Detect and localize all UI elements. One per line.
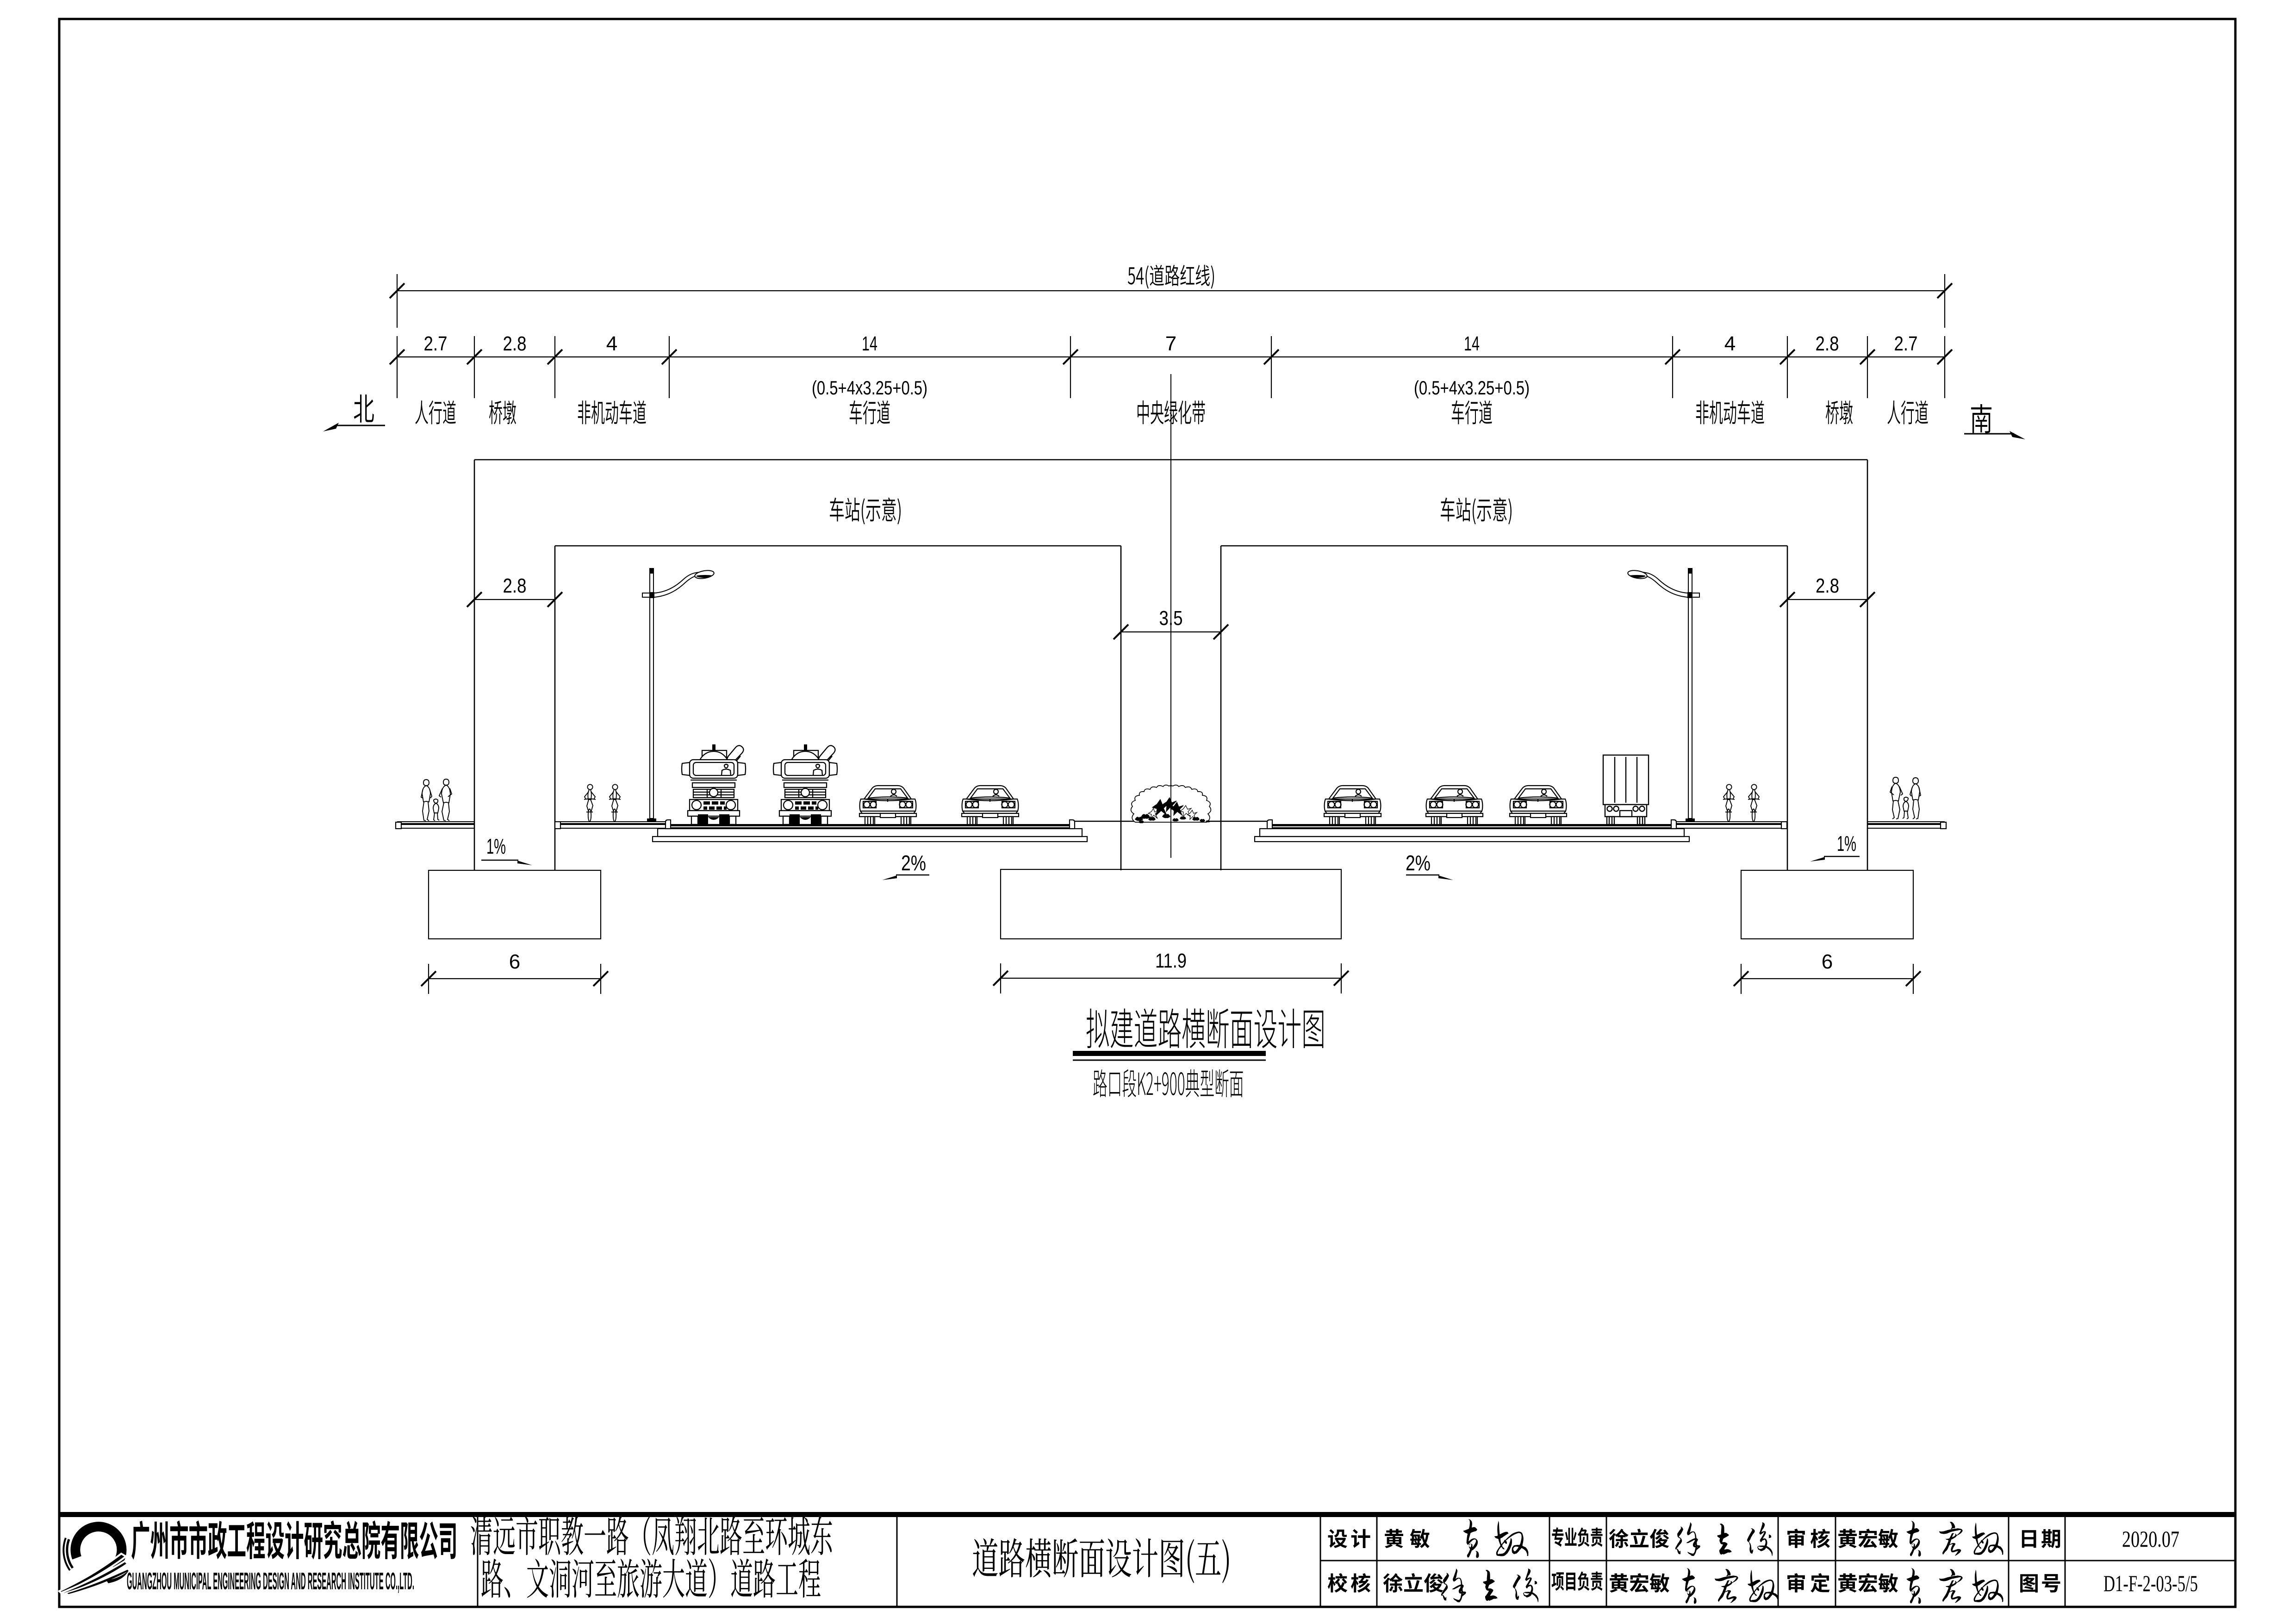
svg-text:2.7: 2.7	[1894, 332, 1918, 355]
svg-text:2020.07: 2020.07	[2122, 1526, 2179, 1552]
svg-text:11.9: 11.9	[1155, 949, 1187, 972]
svg-text:7: 7	[1165, 332, 1176, 355]
svg-text:2.8: 2.8	[503, 575, 527, 597]
svg-text:2.7: 2.7	[424, 332, 448, 355]
svg-text:6: 6	[509, 950, 520, 973]
svg-text:2.8: 2.8	[503, 332, 527, 355]
svg-text:(0.5+4x3.25+0.5): (0.5+4x3.25+0.5)	[812, 377, 927, 399]
svg-text:2.8: 2.8	[1816, 332, 1839, 355]
svg-text:2%: 2%	[1406, 851, 1431, 875]
svg-text:2%: 2%	[901, 851, 926, 875]
svg-text:(0.5+4x3.25+0.5): (0.5+4x3.25+0.5)	[1414, 377, 1530, 399]
svg-text:GUANGZHOU MUNICIPAL ENGINEERIN: GUANGZHOU MUNICIPAL ENGINEERING DESIGN A…	[127, 1568, 414, 1595]
svg-text:1%: 1%	[1837, 831, 1856, 856]
svg-text:14: 14	[1464, 332, 1480, 355]
svg-text:4: 4	[606, 332, 617, 355]
svg-text:1%: 1%	[486, 834, 506, 858]
svg-text:3.5: 3.5	[1159, 607, 1183, 630]
svg-text:14: 14	[862, 332, 877, 355]
svg-text:2.8: 2.8	[1816, 575, 1839, 597]
svg-text:D1-F-2-03-5/5: D1-F-2-03-5/5	[2103, 1570, 2198, 1596]
svg-text:4: 4	[1724, 332, 1736, 355]
svg-text:6: 6	[1822, 950, 1833, 973]
